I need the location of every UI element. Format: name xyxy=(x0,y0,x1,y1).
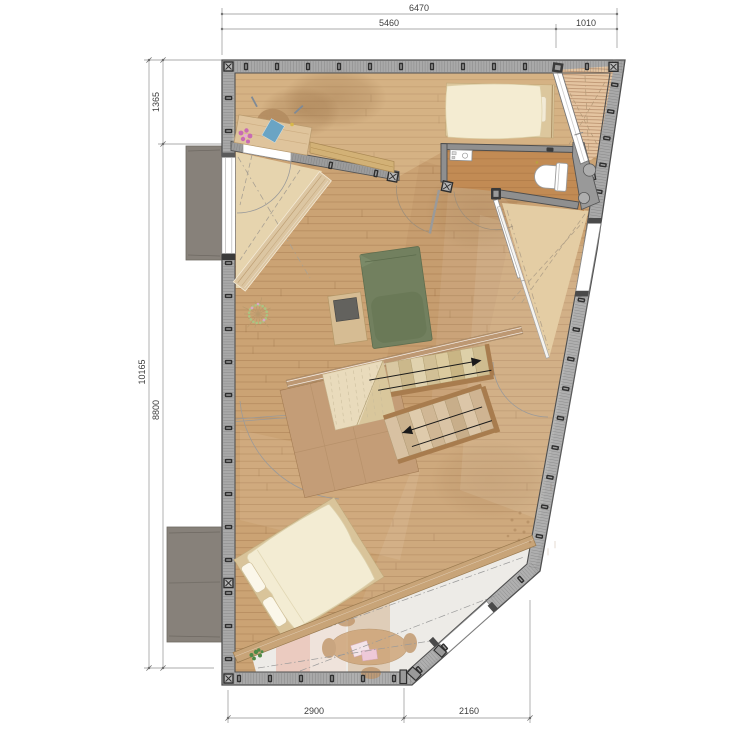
svg-text:6470: 6470 xyxy=(409,3,429,13)
svg-text:10165: 10165 xyxy=(137,359,147,384)
svg-text:2160: 2160 xyxy=(459,706,479,716)
svg-text:8800: 8800 xyxy=(151,400,161,420)
svg-text:1010: 1010 xyxy=(576,18,596,28)
svg-text:1365: 1365 xyxy=(151,92,161,112)
svg-text:2900: 2900 xyxy=(304,706,324,716)
svg-text:5460: 5460 xyxy=(379,18,399,28)
